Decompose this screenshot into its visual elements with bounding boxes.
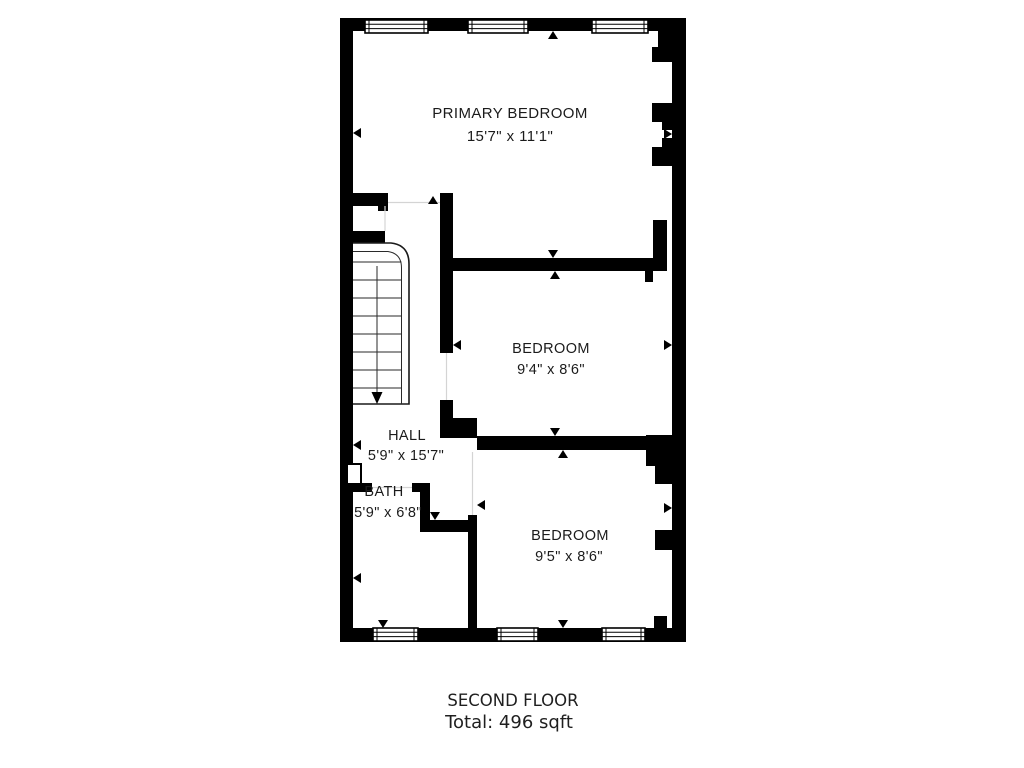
chimney-top-notch [652,31,658,47]
wall-left [340,18,353,642]
hall-label: HALL [388,428,426,444]
dim-arrow-bath-left [353,573,361,583]
dim-arrow-lower-left [477,500,485,510]
pier-bottom-block [654,616,667,628]
chimney-junction-mass [646,435,672,466]
primary-south-stub-tip [378,206,388,211]
dim-arrow-primary-down [548,250,558,258]
hall-east-wall-upper [440,193,453,353]
primary-bedroom-dims: 15'7" x 11'1" [467,128,553,145]
floor-title: SECOND FLOOR [447,691,578,710]
chimney-junction-step [655,466,672,484]
caption: SECOND FLOOR Total: 496 sqft [444,691,579,733]
pier-mid [652,147,672,166]
dim-arrow-primary-left [353,128,361,138]
primary-bedroom-label: PRIMARY BEDROOM [432,105,587,122]
dim-arrow-middle-left [453,340,461,350]
floor-plan-canvas: PRIMARY BEDROOM 15'7" x 11'1" BEDROOM 9'… [0,0,1024,768]
dim-arrow-middle-up [550,271,560,279]
dim-arrow-middle-down [550,428,560,436]
dim-arrow-lower-right [664,503,672,513]
bath-label: BATH [364,484,403,500]
pier-lower [655,530,672,550]
room-labels: PRIMARY BEDROOM 15'7" x 11'1" BEDROOM 9'… [354,105,609,565]
primary-south-stub-left [353,193,388,206]
stair-outer-rail [353,243,409,404]
middle-bedroom-label: BEDROOM [512,341,590,357]
pier-upper [652,103,672,122]
window-bottom-3 [602,628,645,641]
bath-south-wall [420,520,477,532]
middle-bedroom-dims: 9'4" x 8'6" [517,362,585,378]
stair-down-arrow-icon [372,392,383,404]
wall-right [672,18,686,642]
staircase [353,243,409,404]
door-openings [372,203,473,516]
window-top-1 [365,20,428,33]
pier-upper-step [662,122,672,130]
lower-bedroom-label: BEDROOM [531,528,609,544]
divider-middle-lower [477,436,646,450]
hall-dims: 5'9" x 15'7" [368,448,444,464]
hall-east-wall-lower [440,400,453,418]
dim-arrow-lower-down [558,620,568,628]
landing-stub [353,231,385,243]
right-wall-piers [646,31,672,628]
dim-arrow-hall-left [353,440,361,450]
lower-bedroom-dims: 9'5" x 8'6" [535,549,603,565]
interior-walls [353,193,667,628]
hall-corner-block [440,418,477,438]
window-bottom-2 [497,628,538,641]
dim-arrow-lower-up [558,450,568,458]
dim-arrow-bath-down [378,620,388,628]
divider-primary-middle [453,258,667,271]
dim-arrow-hall-up [428,196,438,204]
pier-divider-top [653,220,667,260]
floor-total-area: Total: 496 sqft [444,712,573,733]
dim-arrow-middle-right [664,340,672,350]
divider-tooth [645,271,653,282]
bath-dims: 5'9" x 6'8" [354,505,422,521]
pier-mid-step [662,138,672,147]
dim-arrow-primary-up [548,31,558,39]
window-top-3 [592,20,648,33]
window-bottom-1 [373,628,418,641]
window-top-2 [468,20,528,33]
bath-niche [347,464,361,484]
dim-arrow-primary-right [664,129,672,139]
dim-arrow-hall-down [430,512,440,520]
